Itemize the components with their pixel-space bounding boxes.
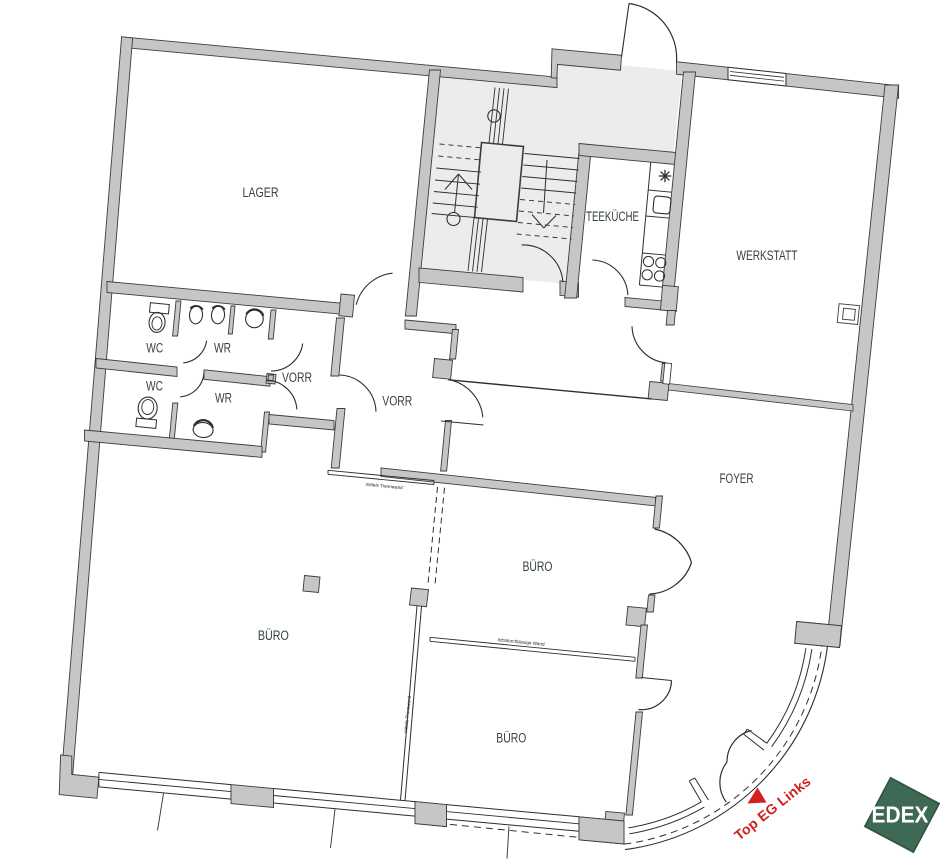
svg-text:WC: WC (146, 379, 163, 394)
svg-text:EDEX: EDEX (872, 802, 930, 828)
svg-text:BÜRO: BÜRO (258, 628, 289, 643)
svg-text:WR: WR (215, 391, 232, 406)
svg-text:VORR: VORR (282, 370, 312, 385)
svg-text:WERKSTATT: WERKSTATT (736, 248, 797, 263)
svg-text:BÜRO: BÜRO (496, 731, 526, 746)
svg-text:LAGER: LAGER (243, 185, 279, 200)
svg-text:VORR: VORR (382, 394, 412, 409)
svg-text:WC: WC (146, 341, 163, 356)
svg-text:FOYER: FOYER (720, 471, 754, 486)
svg-text:WR: WR (214, 341, 231, 356)
svg-text:TEEKÜCHE: TEEKÜCHE (586, 209, 639, 224)
svg-text:BÜRO: BÜRO (523, 559, 553, 574)
